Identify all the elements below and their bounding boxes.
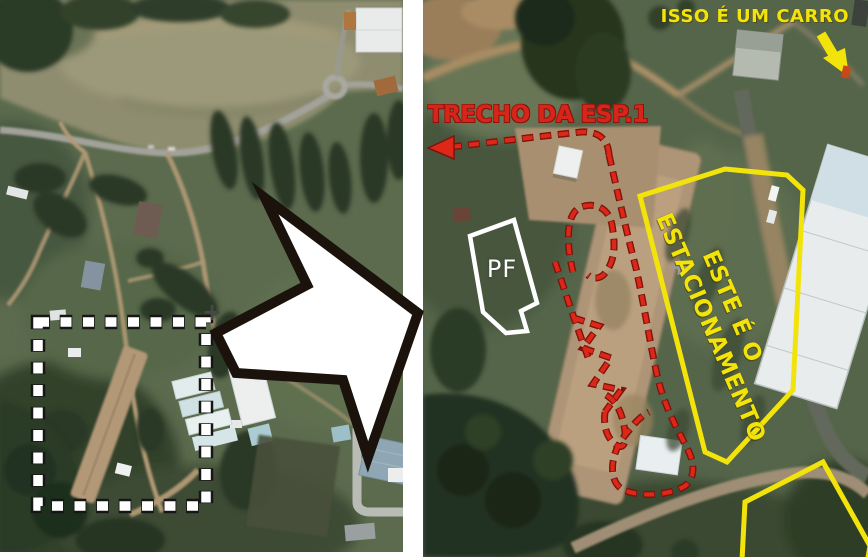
overview-map-panel: + (0, 0, 403, 552)
overview-aerial-image: + (0, 0, 403, 552)
small-shed-2 (68, 348, 81, 357)
pool (331, 425, 351, 443)
trecho-label: TRECHO DA ESP.1 (428, 102, 648, 128)
detail-map-panel: + TRECHO DA ESP.1 ISSO É UM CARRO ESTE É… (423, 0, 868, 557)
map-cross-marker-left: + (202, 298, 222, 326)
building-top-right (733, 30, 784, 81)
panel-divider (403, 0, 423, 560)
staging-area (515, 126, 661, 228)
annotated-aerial-map: + (0, 0, 868, 560)
carro-label: ISSO É UM CARRO (661, 6, 849, 27)
red-roof-shed (453, 207, 471, 221)
pf-label: PF (487, 255, 517, 283)
